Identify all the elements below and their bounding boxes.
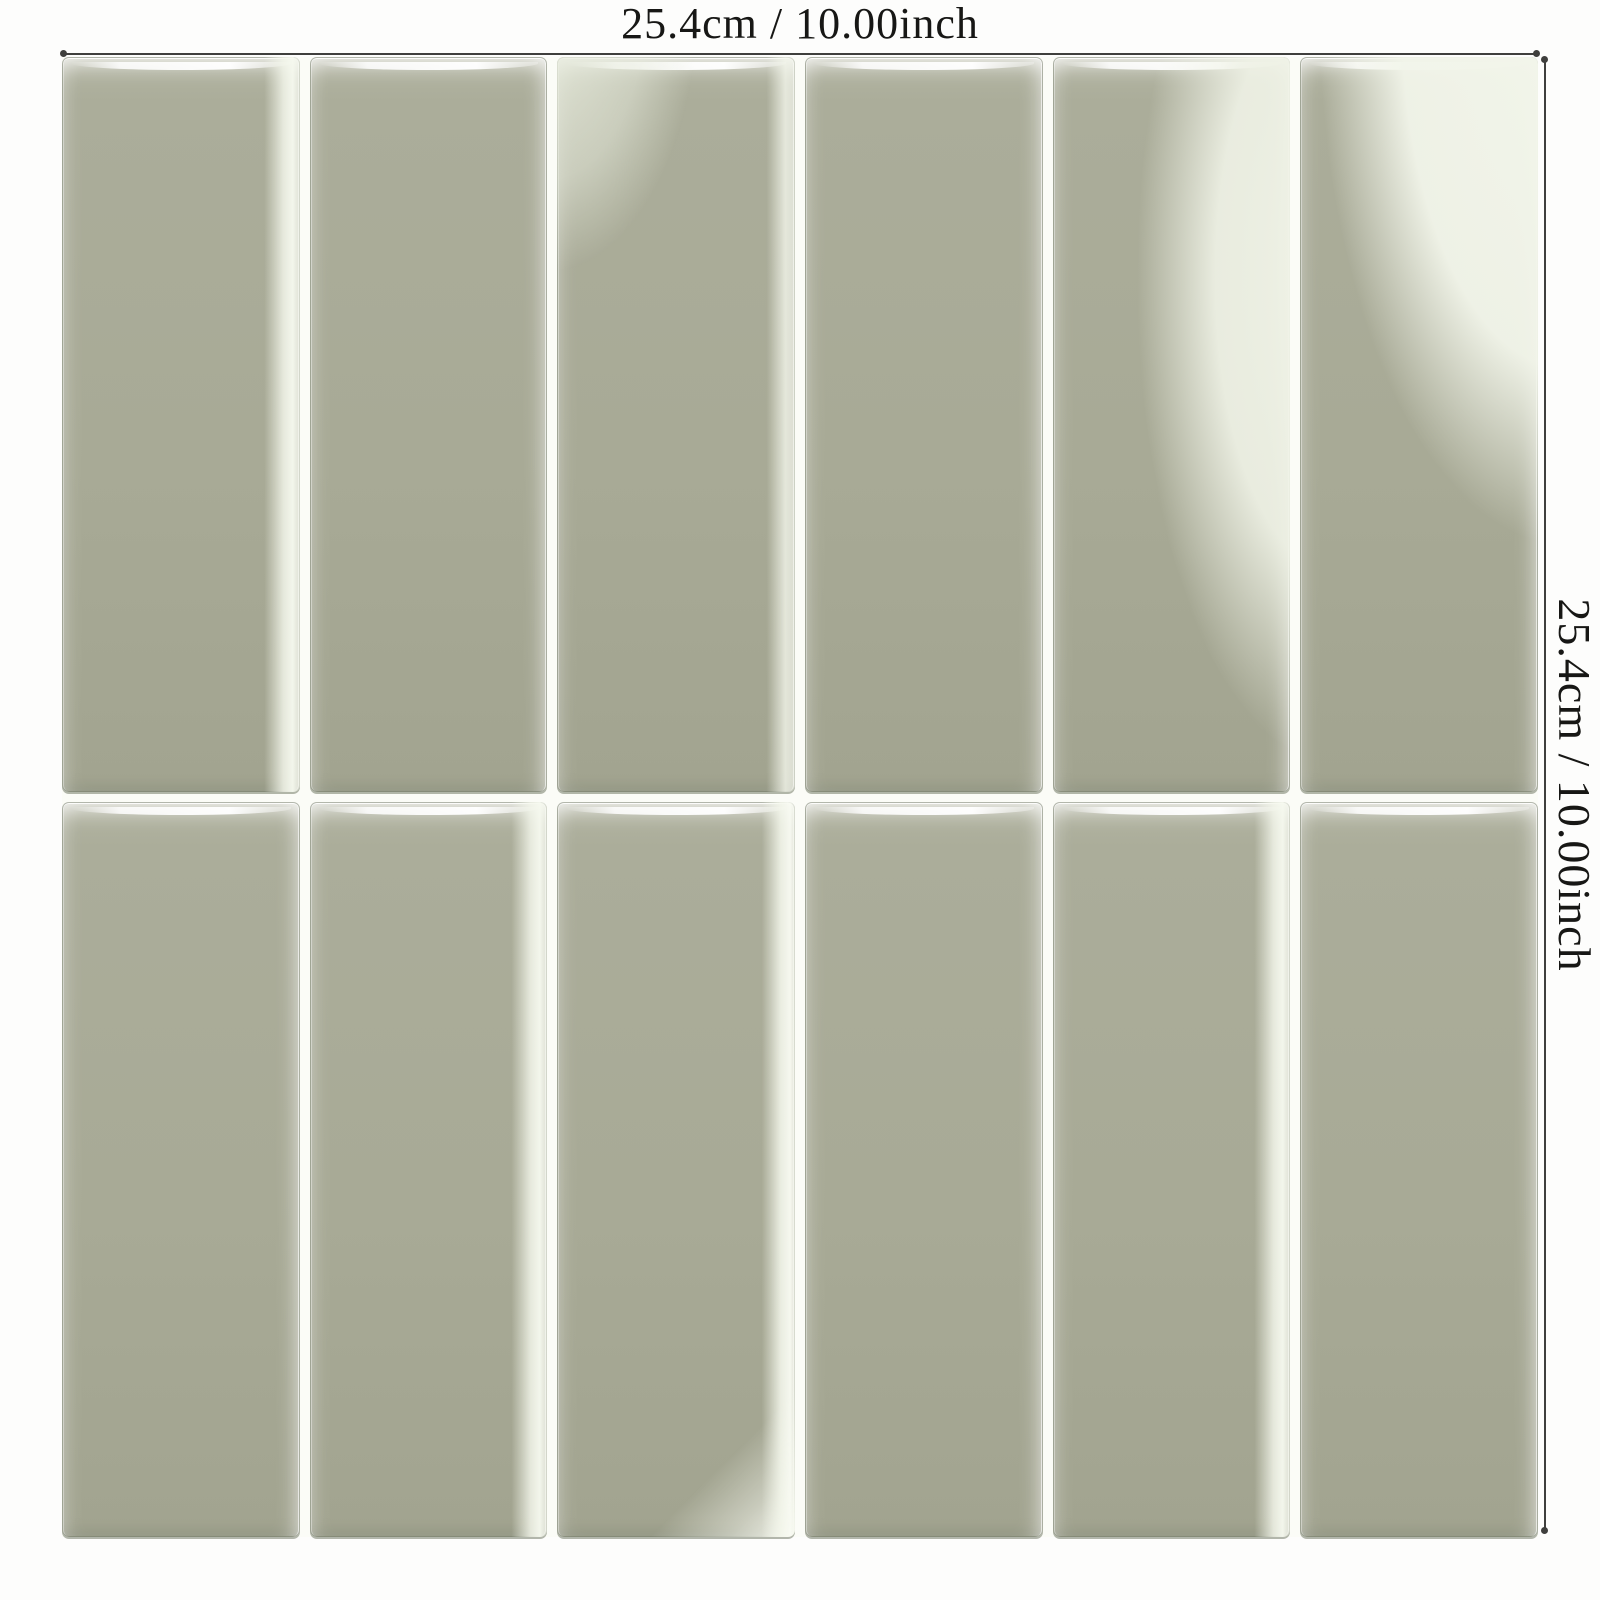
- width-dimension-line: [62, 53, 1538, 55]
- tile-r2-c2: [310, 802, 548, 1537]
- tile-r1-c2: [310, 57, 548, 792]
- dimension-endpoint-dot: [1541, 1527, 1548, 1534]
- tile-r2-c4: [805, 802, 1043, 1537]
- tile-r2-c6: [1300, 802, 1538, 1537]
- tile-r2-c5: [1053, 802, 1291, 1537]
- tile-r1-c3: [557, 57, 795, 792]
- height-dimension-label: 25.4cm / 10.00inch: [1548, 585, 1600, 985]
- tile-r2-c3: [557, 802, 795, 1537]
- product-image: 25.4cm / 10.00inch 25.4cm / 10.00inch: [0, 0, 1600, 1600]
- tile-r1-c6: [1300, 57, 1538, 792]
- tile-sheet: [62, 57, 1538, 1537]
- dimension-endpoint-dot: [60, 50, 67, 57]
- dimension-endpoint-dot: [1533, 50, 1540, 57]
- tile-r1-c1: [62, 57, 300, 792]
- height-dimension-line: [1544, 58, 1546, 1532]
- dimension-endpoint-dot: [1541, 56, 1548, 63]
- tile-r1-c4: [805, 57, 1043, 792]
- tile-r1-c5: [1053, 57, 1291, 792]
- tile-r2-c1: [62, 802, 300, 1537]
- width-dimension-label: 25.4cm / 10.00inch: [62, 0, 1538, 50]
